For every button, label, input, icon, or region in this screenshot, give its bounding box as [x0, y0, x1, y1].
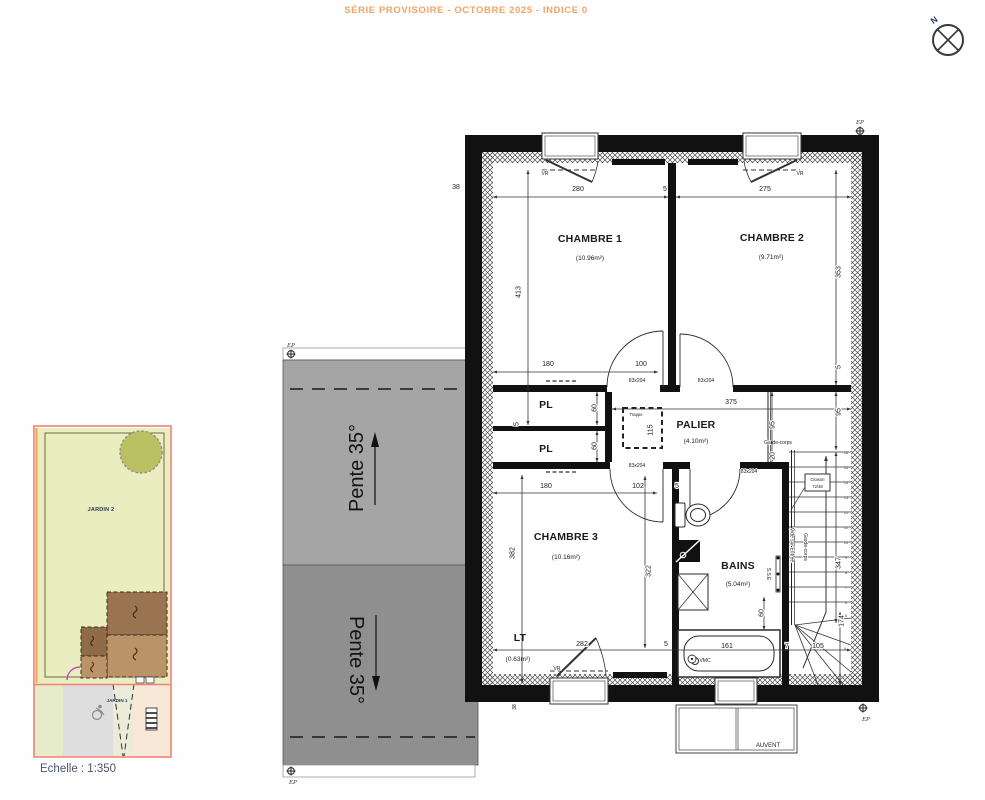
svg-text:12: 12 — [844, 510, 849, 515]
svg-text:322: 322 — [646, 565, 653, 577]
chambre1-name: CHAMBRE 1 — [558, 233, 622, 245]
svg-text:83x204: 83x204 — [698, 378, 715, 384]
jardin2-label: JARDIN 2 — [88, 507, 115, 513]
jardin1-label: JARDIN 1 — [107, 698, 128, 703]
scale-label: Echelle : 1:350 — [40, 763, 116, 775]
tree-icon — [120, 431, 162, 473]
svg-text:174: 174 — [839, 615, 846, 627]
svg-text:83x204: 83x204 — [629, 463, 646, 469]
bathtub-icon — [678, 630, 780, 677]
svg-text:Garde-corps: Garde-corps — [764, 440, 792, 446]
ep-marker-top: EP — [855, 119, 864, 136]
svg-text:275: 275 — [759, 186, 771, 193]
toilet-icon — [675, 503, 710, 527]
svg-text:38: 38 — [512, 704, 518, 710]
plan-sheet: SÉRIE PROVISOIRE - OCTOBRE 2025 - INDICE… — [0, 0, 985, 800]
stair-hatch-icon — [146, 708, 157, 730]
svg-text:VMC: VMC — [699, 658, 711, 664]
svg-text:180: 180 — [540, 483, 552, 490]
svg-text:EP: EP — [855, 119, 864, 126]
chambre3-name: CHAMBRE 3 — [534, 531, 598, 543]
svg-text:161: 161 — [721, 643, 733, 650]
svg-text:(9.71m²): (9.71m²) — [759, 254, 784, 261]
svg-text:(10.96m²): (10.96m²) — [576, 255, 604, 262]
svg-text:20: 20 — [770, 452, 777, 460]
pl1-name: PL — [539, 399, 553, 411]
towel-rail-icon — [776, 556, 780, 592]
floor-plan: Trappe 115 Garde-corps — [452, 119, 879, 753]
svg-text:VR: VR — [554, 666, 561, 672]
svg-text:95: 95 — [836, 408, 843, 416]
vmc-icon — [688, 655, 696, 663]
bains-name: BAINS — [721, 560, 755, 572]
svg-text:38: 38 — [452, 184, 460, 191]
lt-name: LT — [514, 632, 527, 644]
roof-slope-lower-label: Pente 35° — [345, 616, 367, 704]
svg-text:5: 5 — [514, 422, 521, 426]
svg-text:353: 353 — [836, 266, 843, 278]
svg-text:S.S.E: S.S.E — [765, 568, 771, 581]
svg-text:Trappe: Trappe — [629, 412, 643, 417]
svg-text:(10.16m²): (10.16m²) — [552, 554, 580, 561]
svg-text:5: 5 — [664, 641, 668, 648]
svg-text:280: 280 — [572, 186, 584, 193]
pl2-name: PL — [539, 443, 553, 455]
roof-lower-pane — [283, 565, 478, 765]
svg-text:83x204: 83x204 — [629, 378, 646, 384]
chambre2-name: CHAMBRE 2 — [740, 232, 804, 244]
svg-text:102: 102 — [632, 483, 644, 490]
washbasin-unit-icon — [676, 540, 700, 562]
svg-text:EP: EP — [286, 342, 295, 349]
svg-text:347: 347 — [836, 557, 843, 569]
svg-text:115: 115 — [648, 424, 655, 435]
svg-text:VR: VR — [542, 171, 549, 177]
svg-text:60: 60 — [592, 442, 599, 450]
svg-text:60: 60 — [592, 404, 599, 412]
svg-text:(4.10m²): (4.10m²) — [684, 438, 709, 445]
svg-text:5: 5 — [836, 365, 843, 369]
svg-text:VR: VR — [797, 171, 804, 177]
svg-text:5: 5 — [675, 483, 679, 490]
svg-text:16: 16 — [844, 450, 849, 455]
svg-text:10: 10 — [844, 540, 849, 545]
svg-text:375: 375 — [725, 399, 737, 406]
site-plan: JARDIN 2 — [34, 426, 171, 757]
svg-text:(0.63m²): (0.63m²) — [506, 656, 531, 663]
svg-text:EP: EP — [861, 716, 870, 723]
roof-plan: Pente 35° Pente 35° EP EP — [283, 342, 478, 786]
svg-text:5: 5 — [663, 186, 667, 193]
auvent: AUVENT — [676, 705, 797, 753]
svg-text:14: 14 — [844, 480, 849, 485]
roof-upper-pane — [283, 360, 478, 565]
vide-sur-entree-label: Vide sur Entrée — [789, 528, 795, 563]
shower-icon — [678, 574, 708, 610]
roof-slope-upper-label: Pente 35° — [346, 424, 368, 512]
ep-marker-bottom: EP — [859, 704, 870, 724]
north-label: N — [929, 14, 940, 26]
svg-text:100: 100 — [635, 361, 647, 368]
svg-text:282: 282 — [576, 641, 588, 648]
svg-text:60: 60 — [759, 609, 766, 617]
svg-text:413: 413 — [516, 286, 523, 298]
svg-text:72/48: 72/48 — [812, 484, 823, 489]
svg-text:Cloison: Cloison — [811, 477, 826, 482]
north-compass: N — [929, 14, 963, 55]
svg-text:83x204: 83x204 — [741, 469, 758, 475]
svg-text:180: 180 — [542, 361, 554, 368]
svg-text:382: 382 — [510, 547, 517, 559]
drawing: SÉRIE PROVISOIRE - OCTOBRE 2025 - INDICE… — [0, 0, 985, 800]
svg-text:(5.04m²): (5.04m²) — [726, 581, 751, 588]
svg-text:105: 105 — [812, 643, 824, 650]
svg-text:13: 13 — [844, 495, 849, 500]
svg-text:EP: EP — [288, 779, 297, 786]
svg-text:15: 15 — [844, 465, 849, 470]
stair-garde-corps-label: Garde-corps — [802, 533, 808, 561]
svg-text:95: 95 — [770, 421, 777, 429]
auvent-label: AUVENT — [756, 743, 781, 749]
jardin1-area — [63, 685, 113, 756]
svg-text:7: 7 — [785, 643, 789, 650]
sheet-title: SÉRIE PROVISOIRE - OCTOBRE 2025 - INDICE… — [344, 5, 588, 16]
palier-name: PALIER — [677, 419, 716, 431]
